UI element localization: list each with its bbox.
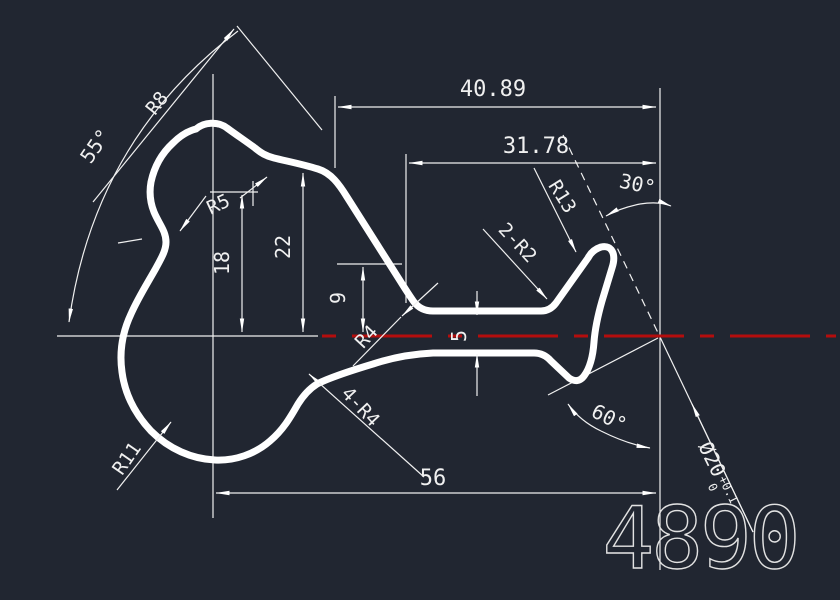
dim-angle-30: 30°: [606, 169, 671, 216]
radius-r8-label: R8: [142, 88, 173, 120]
tangent-line-55: [237, 26, 322, 130]
dim-31-78: 31.78: [409, 134, 656, 163]
drawing-canvas[interactable]: 40.89 31.78 56 22 18 9 5 55°: [0, 0, 840, 600]
angle-55-label: 55°: [75, 124, 115, 167]
dim-31-78-label: 31.78: [503, 134, 569, 159]
dim-5-label: 5: [447, 330, 471, 342]
dim-40-89: 40.89: [338, 77, 656, 107]
dim-5: 5: [447, 291, 477, 396]
radius-r4-label: R4: [351, 321, 383, 353]
dim-9-label: 9: [326, 292, 350, 304]
radius-r11-label: R11: [108, 438, 146, 479]
dim-22-label: 22: [271, 235, 295, 259]
dim-9: 9: [326, 267, 363, 332]
dim-22: 22: [271, 173, 303, 332]
construction-line-30deg: [563, 135, 660, 337]
radius-r5-label: R5: [203, 190, 233, 220]
angle-60-label: 60°: [588, 399, 631, 437]
construction-line-60deg: [548, 338, 658, 395]
leader-r11: R11: [108, 422, 171, 490]
leader-r13: R13: [534, 168, 581, 252]
dim-56: 56: [216, 466, 656, 493]
fillet-2-r2-label: 2-R2: [494, 219, 541, 267]
dim-angle-60: 60°: [568, 399, 650, 448]
dim-18-label: 18: [210, 251, 234, 275]
dim-56-label: 56: [420, 466, 447, 491]
part-number: 4890: [602, 489, 797, 589]
cad-drawing-stage: 40.89 31.78 56 22 18 9 5 55°: [0, 0, 840, 600]
angle-30-label: 30°: [617, 169, 657, 200]
leader-2-r2: 2-R2: [483, 219, 547, 299]
notch-dash: [118, 239, 142, 243]
fillet-4-r4-label: 4-R4: [337, 383, 384, 431]
leader-4-r4: 4-R4: [309, 374, 424, 477]
dim-40-89-label: 40.89: [460, 77, 526, 102]
radius-r13-label: R13: [544, 176, 581, 217]
